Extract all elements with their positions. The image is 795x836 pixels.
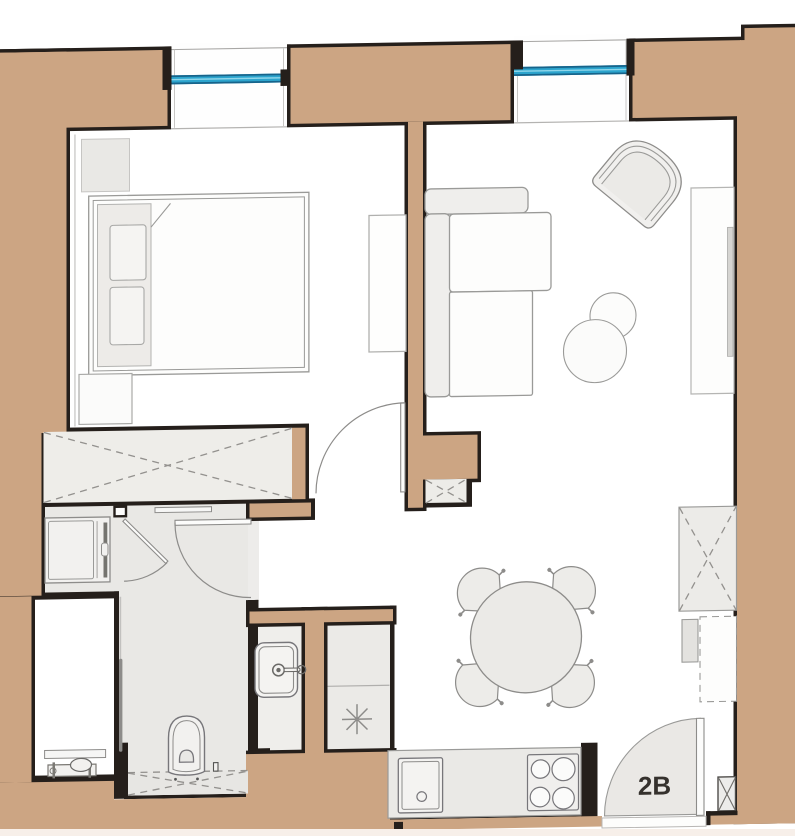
svg-text:2B: 2B [638, 770, 671, 801]
